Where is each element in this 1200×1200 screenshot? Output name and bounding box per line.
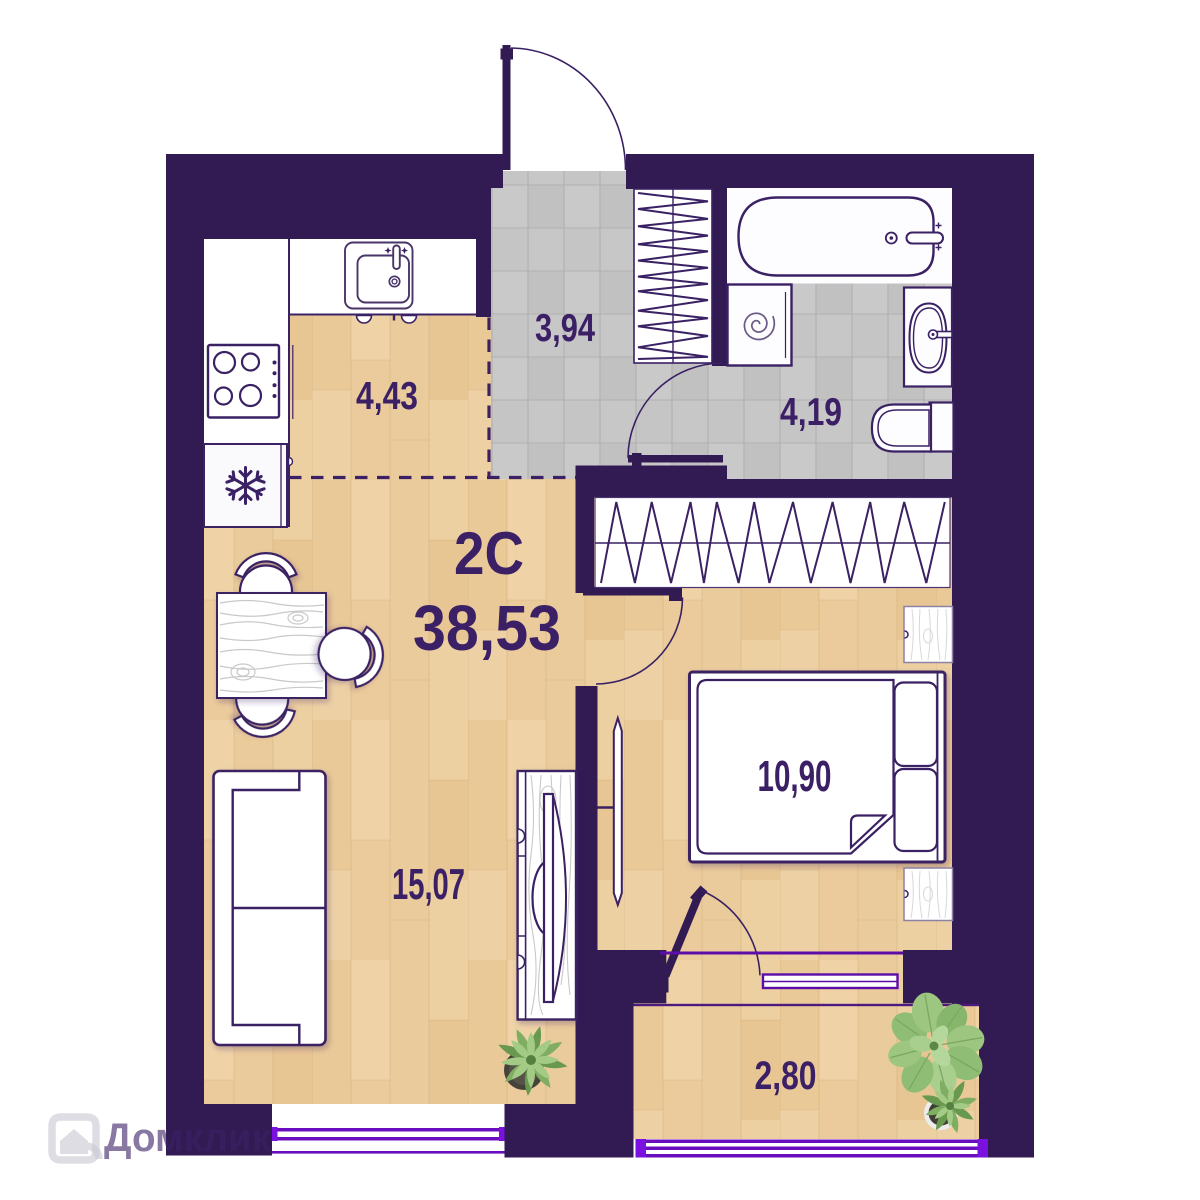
svg-text:3,94: 3,94 <box>535 307 595 350</box>
svg-text:2С: 2С <box>454 520 524 587</box>
svg-text:Домклик: Домклик <box>104 1116 272 1160</box>
svg-text:4,43: 4,43 <box>356 375 418 418</box>
svg-text:2,80: 2,80 <box>755 1054 817 1098</box>
svg-text:10,90: 10,90 <box>758 752 832 801</box>
svg-text:38,53: 38,53 <box>413 592 561 664</box>
svg-text:15,07: 15,07 <box>392 860 465 909</box>
svg-text:4,19: 4,19 <box>780 391 842 434</box>
